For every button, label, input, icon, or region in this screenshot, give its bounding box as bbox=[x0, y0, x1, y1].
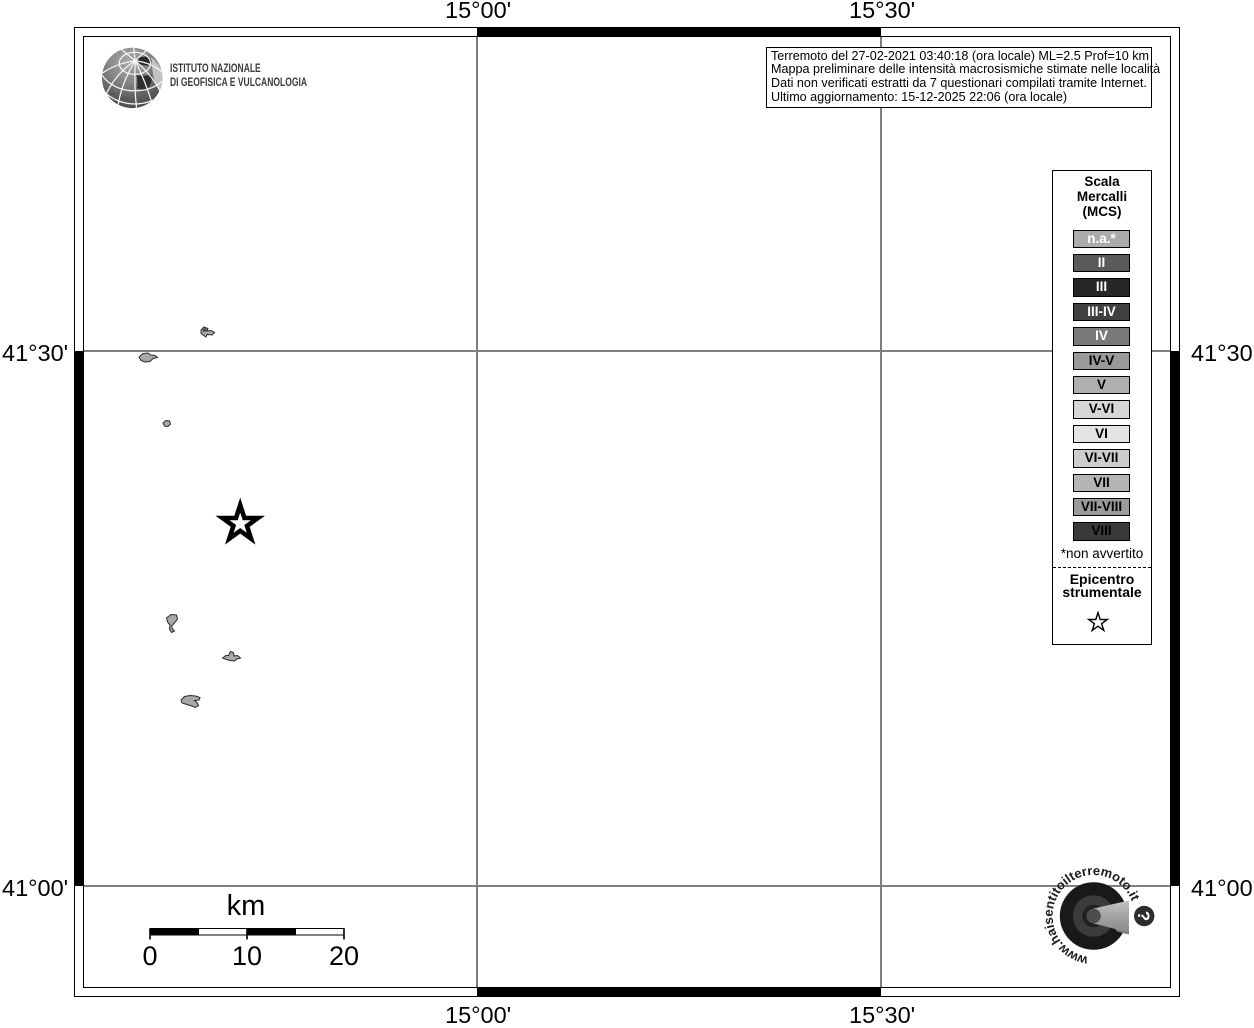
svg-text:?: ? bbox=[1134, 911, 1153, 921]
